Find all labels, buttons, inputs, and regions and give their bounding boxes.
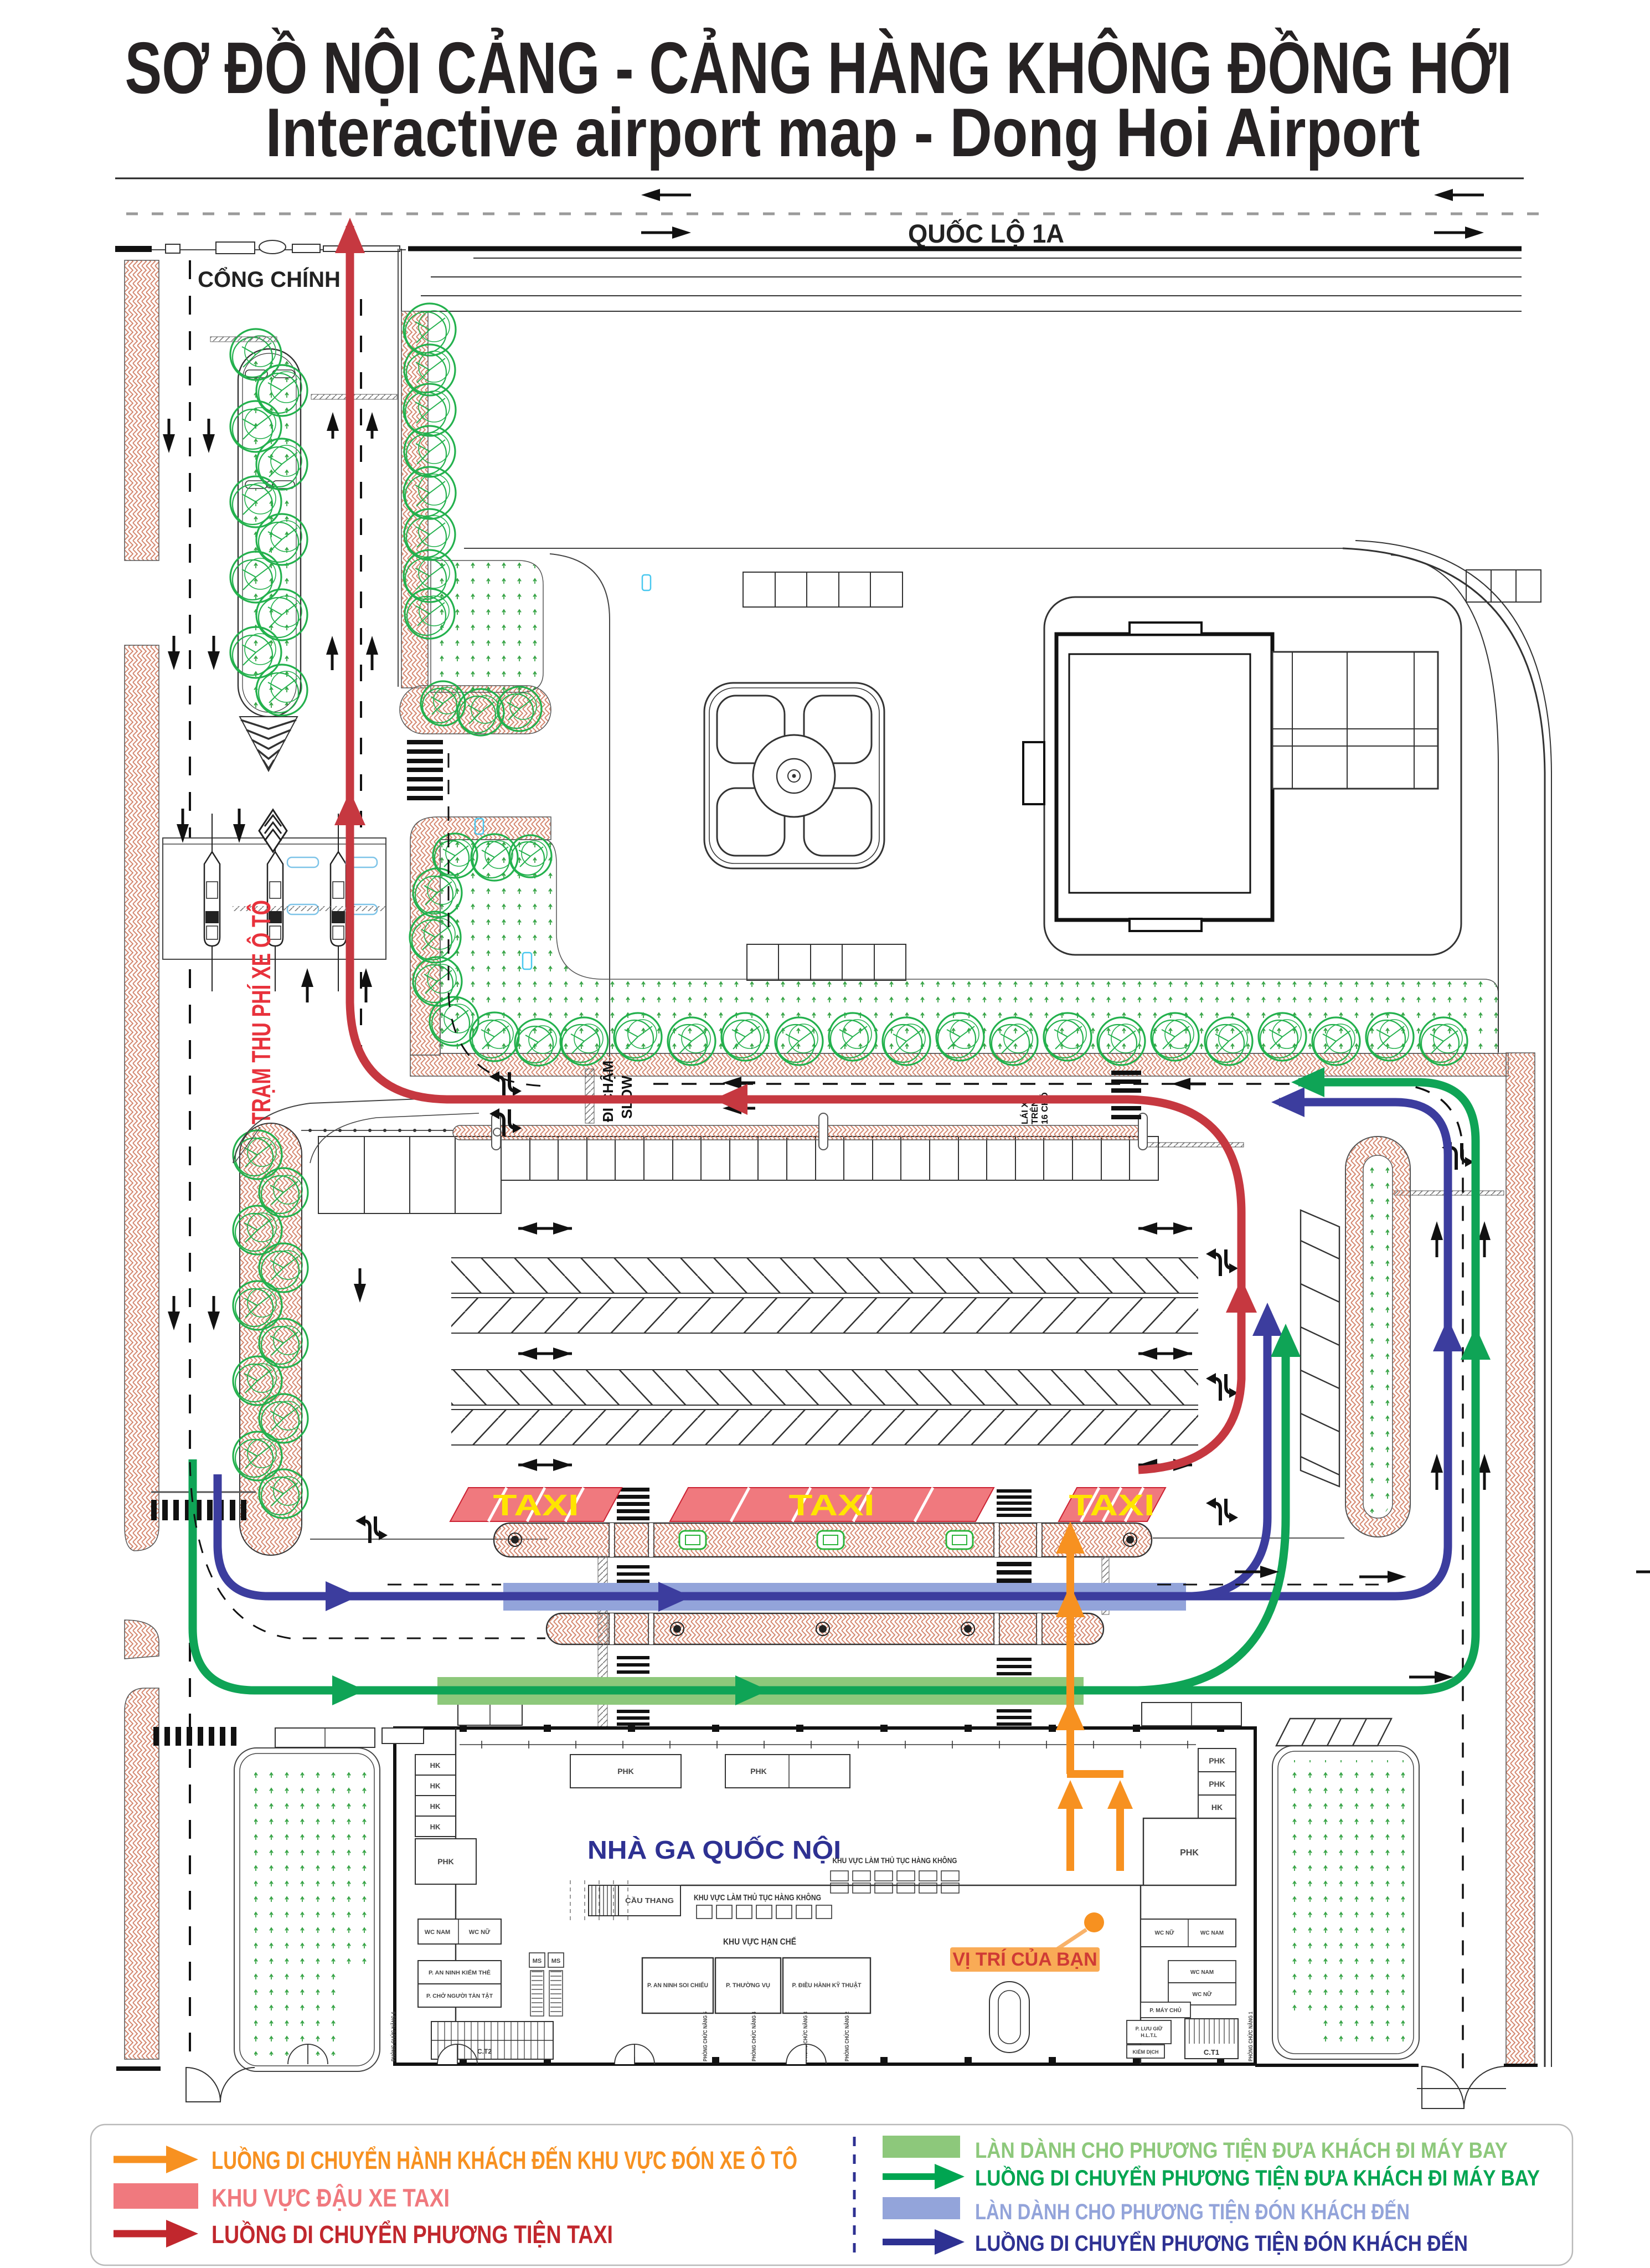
svg-text:WC NỮ: WC NỮ [1193,1991,1213,1998]
svg-text:TRÊN: TRÊN [1029,1100,1040,1124]
svg-text:LÀN DÀNH CHO PHƯƠNG TIỆN ĐƯA K: LÀN DÀNH CHO PHƯƠNG TIỆN ĐƯA KHÁCH ĐI MÁ… [975,2137,1508,2163]
svg-text:PHK: PHK [1180,1848,1199,1858]
svg-text:LUỒNG DI CHUYỂN PHƯƠNG TIỆN TA: LUỒNG DI CHUYỂN PHƯƠNG TIỆN TAXI [212,2220,613,2249]
svg-text:LUỒNG DI CHUYỂN PHƯƠNG TIỆN ĐÓ: LUỒNG DI CHUYỂN PHƯƠNG TIỆN ĐÓN KHÁCH ĐẾ… [975,2230,1468,2256]
svg-text:C.T1: C.T1 [1204,2048,1219,2056]
svg-text:KHU VỰC LÀM THỦ TỤC HÀNG KHÔNG: KHU VỰC LÀM THỦ TỤC HÀNG KHÔNG [694,1892,821,1902]
svg-text:KIỂM DỊCH: KIỂM DỊCH [1133,2049,1159,2055]
svg-text:P. CHỞ NGƯỜI TÀN TẬT: P. CHỞ NGƯỜI TÀN TẬT [426,1992,493,1999]
svg-text:PHK: PHK [750,1767,767,1776]
svg-text:PHÒNG CHỨC NĂNG 2: PHÒNG CHỨC NĂNG 2 [843,2012,850,2061]
svg-text:KHU VỰC LÀM THỦ TỤC HÀNG KHÔNG: KHU VỰC LÀM THỦ TỤC HÀNG KHÔNG [833,1855,957,1865]
svg-text:HK: HK [430,1782,441,1790]
svg-text:CẦU THANG: CẦU THANG [625,1896,674,1905]
svg-text:CỔNG CHÍNH: CỔNG CHÍNH [198,266,341,292]
svg-text:C.T2: C.T2 [477,2048,492,2055]
svg-text:P. THƯỜNG VỤ: P. THƯỜNG VỤ [726,1982,770,1989]
svg-text:HK: HK [430,1823,441,1831]
svg-text:PHÒNG CHỨC NĂNG 5: PHÒNG CHỨC NĂNG 5 [702,2012,709,2061]
svg-text:PHK: PHK [617,1767,634,1776]
svg-text:P. MÁY CHỦ: P. MÁY CHỦ [1149,2007,1181,2014]
svg-text:H.L.T.L: H.L.T.L [1141,2033,1157,2038]
svg-text:WC NỮ: WC NỮ [1155,1929,1175,1936]
svg-text:PHÒNG CHỨC NĂNG 1: PHÒNG CHỨC NĂNG 1 [1247,2012,1254,2061]
svg-text:WC NAM: WC NAM [1200,1930,1224,1936]
svg-text:LUỒNG DI CHUYỂN PHƯƠNG TIỆN ĐƯ: LUỒNG DI CHUYỂN PHƯƠNG TIỆN ĐƯA KHÁCH ĐI… [975,2164,1540,2190]
svg-text:WC NAM: WC NAM [1190,1969,1214,1976]
svg-text:HK: HK [430,1802,441,1811]
svg-text:LÀN DÀNH CHO PHƯƠNG TIỆN ĐÓN K: LÀN DÀNH CHO PHƯƠNG TIỆN ĐÓN KHÁCH ĐẾN [975,2199,1410,2224]
svg-text:P. LƯU GIỮ: P. LƯU GIỮ [1136,2026,1163,2032]
svg-text:PHK: PHK [437,1857,454,1866]
svg-text:ĐI CHẬM: ĐI CHẬM [600,1061,616,1122]
svg-text:WC NAM: WC NAM [425,1929,450,1936]
svg-text:PHK: PHK [1209,1780,1225,1788]
svg-text:HK: HK [430,1761,441,1770]
svg-text:PHÒNG CHỨC NĂNG 6: PHÒNG CHỨC NĂNG 6 [390,2012,397,2061]
svg-text:P. AN NINH SOI CHIẾU: P. AN NINH SOI CHIẾU [647,1982,708,1989]
svg-text:P. AN NINH KIỂM THẺ: P. AN NINH KIỂM THẺ [429,1969,491,1976]
svg-text:TRẠM THU PHÍ XE Ô TÔ: TRẠM THU PHÍ XE Ô TÔ [246,900,276,1124]
svg-text:KHU VỰC ĐẬU XE TAXI: KHU VỰC ĐẬU XE TAXI [212,2184,450,2212]
svg-text:MS: MS [533,1958,542,1964]
svg-text:P. ĐIỀU HÀNH KỸ THUẬT: P. ĐIỀU HÀNH KỸ THUẬT [792,1982,862,1989]
svg-text:TAXI: TAXI [789,1489,875,1522]
svg-text:KHU VỰC HẠN CHẾ: KHU VỰC HẠN CHẾ [723,1936,796,1947]
svg-text:WC NỮ: WC NỮ [469,1928,491,1936]
svg-text:LUỒNG DI CHUYỂN HÀNH KHÁCH ĐẾN: LUỒNG DI CHUYỂN HÀNH KHÁCH ĐẾN KHU VỰC Đ… [212,2146,797,2174]
svg-text:MS: MS [551,1958,561,1964]
svg-text:QUỐC LỘ 1A: QUỐC LỘ 1A [908,219,1064,248]
svg-text:PHÒNG CHỨC NĂNG 4: PHÒNG CHỨC NĂNG 4 [750,2012,757,2061]
svg-text:VỊ TRÍ CỦA BẠN: VỊ TRÍ CỦA BẠN [952,1949,1097,1970]
svg-text:Interactive airport map - Dong: Interactive airport map - Dong Hoi Airpo… [266,95,1420,171]
svg-text:TAXI: TAXI [493,1489,579,1522]
svg-text:TAXI: TAXI [1069,1489,1155,1522]
svg-text:HK: HK [1211,1803,1223,1812]
svg-text:PHK: PHK [1209,1756,1225,1765]
svg-text:NHÀ GA QUỐC NỘI: NHÀ GA QUỐC NỘI [587,1835,841,1864]
